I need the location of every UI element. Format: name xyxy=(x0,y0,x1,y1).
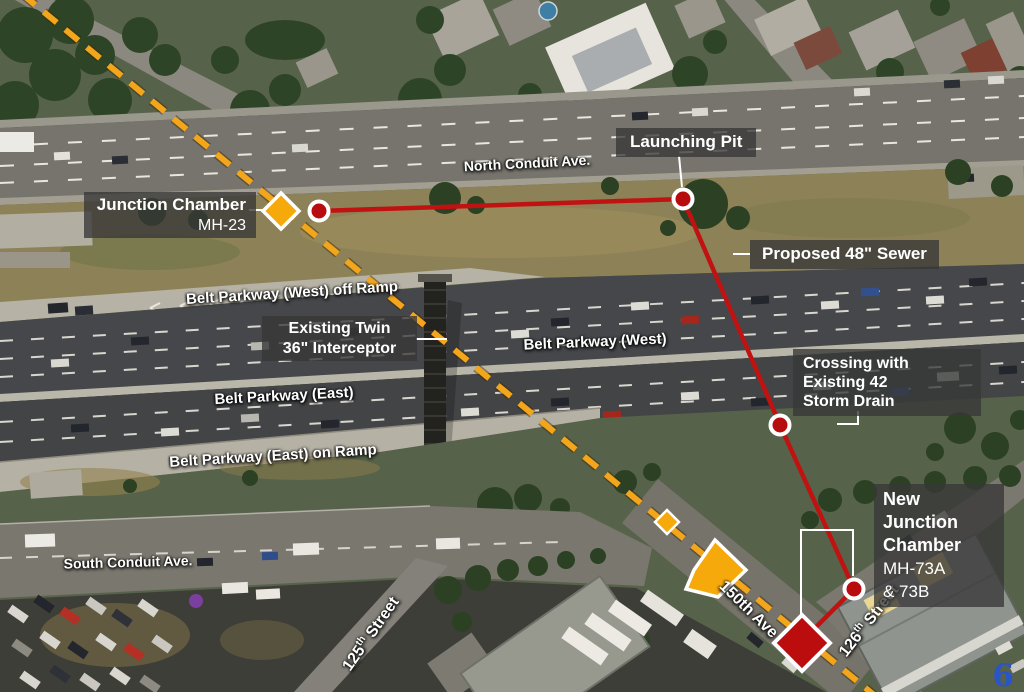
new-junction-line1: New xyxy=(883,488,995,511)
storm-drain-crossing-marker xyxy=(771,416,790,435)
junction-chamber-title: Junction Chamber xyxy=(94,195,246,216)
new-junction-line4: MH-73A xyxy=(883,557,995,580)
slide-number: 6 xyxy=(992,658,1014,692)
launching-pit-marker xyxy=(674,190,693,209)
junction-chamber-label: Junction Chamber MH-23 xyxy=(84,192,256,238)
new-junction-line2: Junction xyxy=(883,511,995,534)
launching-pit-label: Launching Pit xyxy=(616,128,756,157)
interceptor-line2: 36" Interceptor xyxy=(272,339,407,359)
crossing-line2: Existing 42 xyxy=(803,373,971,392)
proposed-sewer-label: Proposed 48" Sewer xyxy=(750,240,939,269)
new-junction-chamber-label: New Junction Chamber MH-73A & 73B xyxy=(874,484,1004,607)
new-junction-marker xyxy=(845,580,864,599)
existing-interceptor-label: Existing Twin 36" Interceptor xyxy=(262,316,417,361)
satellite-basemap xyxy=(0,0,1024,692)
aerial-map-figure: Junction Chamber MH-23 Launching Pit Pro… xyxy=(0,0,1024,692)
new-junction-line5: & 73B xyxy=(883,580,995,603)
interceptor-line1: Existing Twin xyxy=(272,319,407,339)
crossing-line3: Storm Drain xyxy=(803,392,971,411)
street-label-south-conduit: South Conduit Ave. xyxy=(63,552,192,571)
storm-drain-crossing-label: Crossing with Existing 42 Storm Drain xyxy=(793,349,981,416)
new-junction-line3: Chamber xyxy=(883,534,995,557)
junction-chamber-id: MH-23 xyxy=(94,216,246,236)
crossing-line1: Crossing with xyxy=(803,354,971,373)
route-start-marker xyxy=(310,202,329,221)
